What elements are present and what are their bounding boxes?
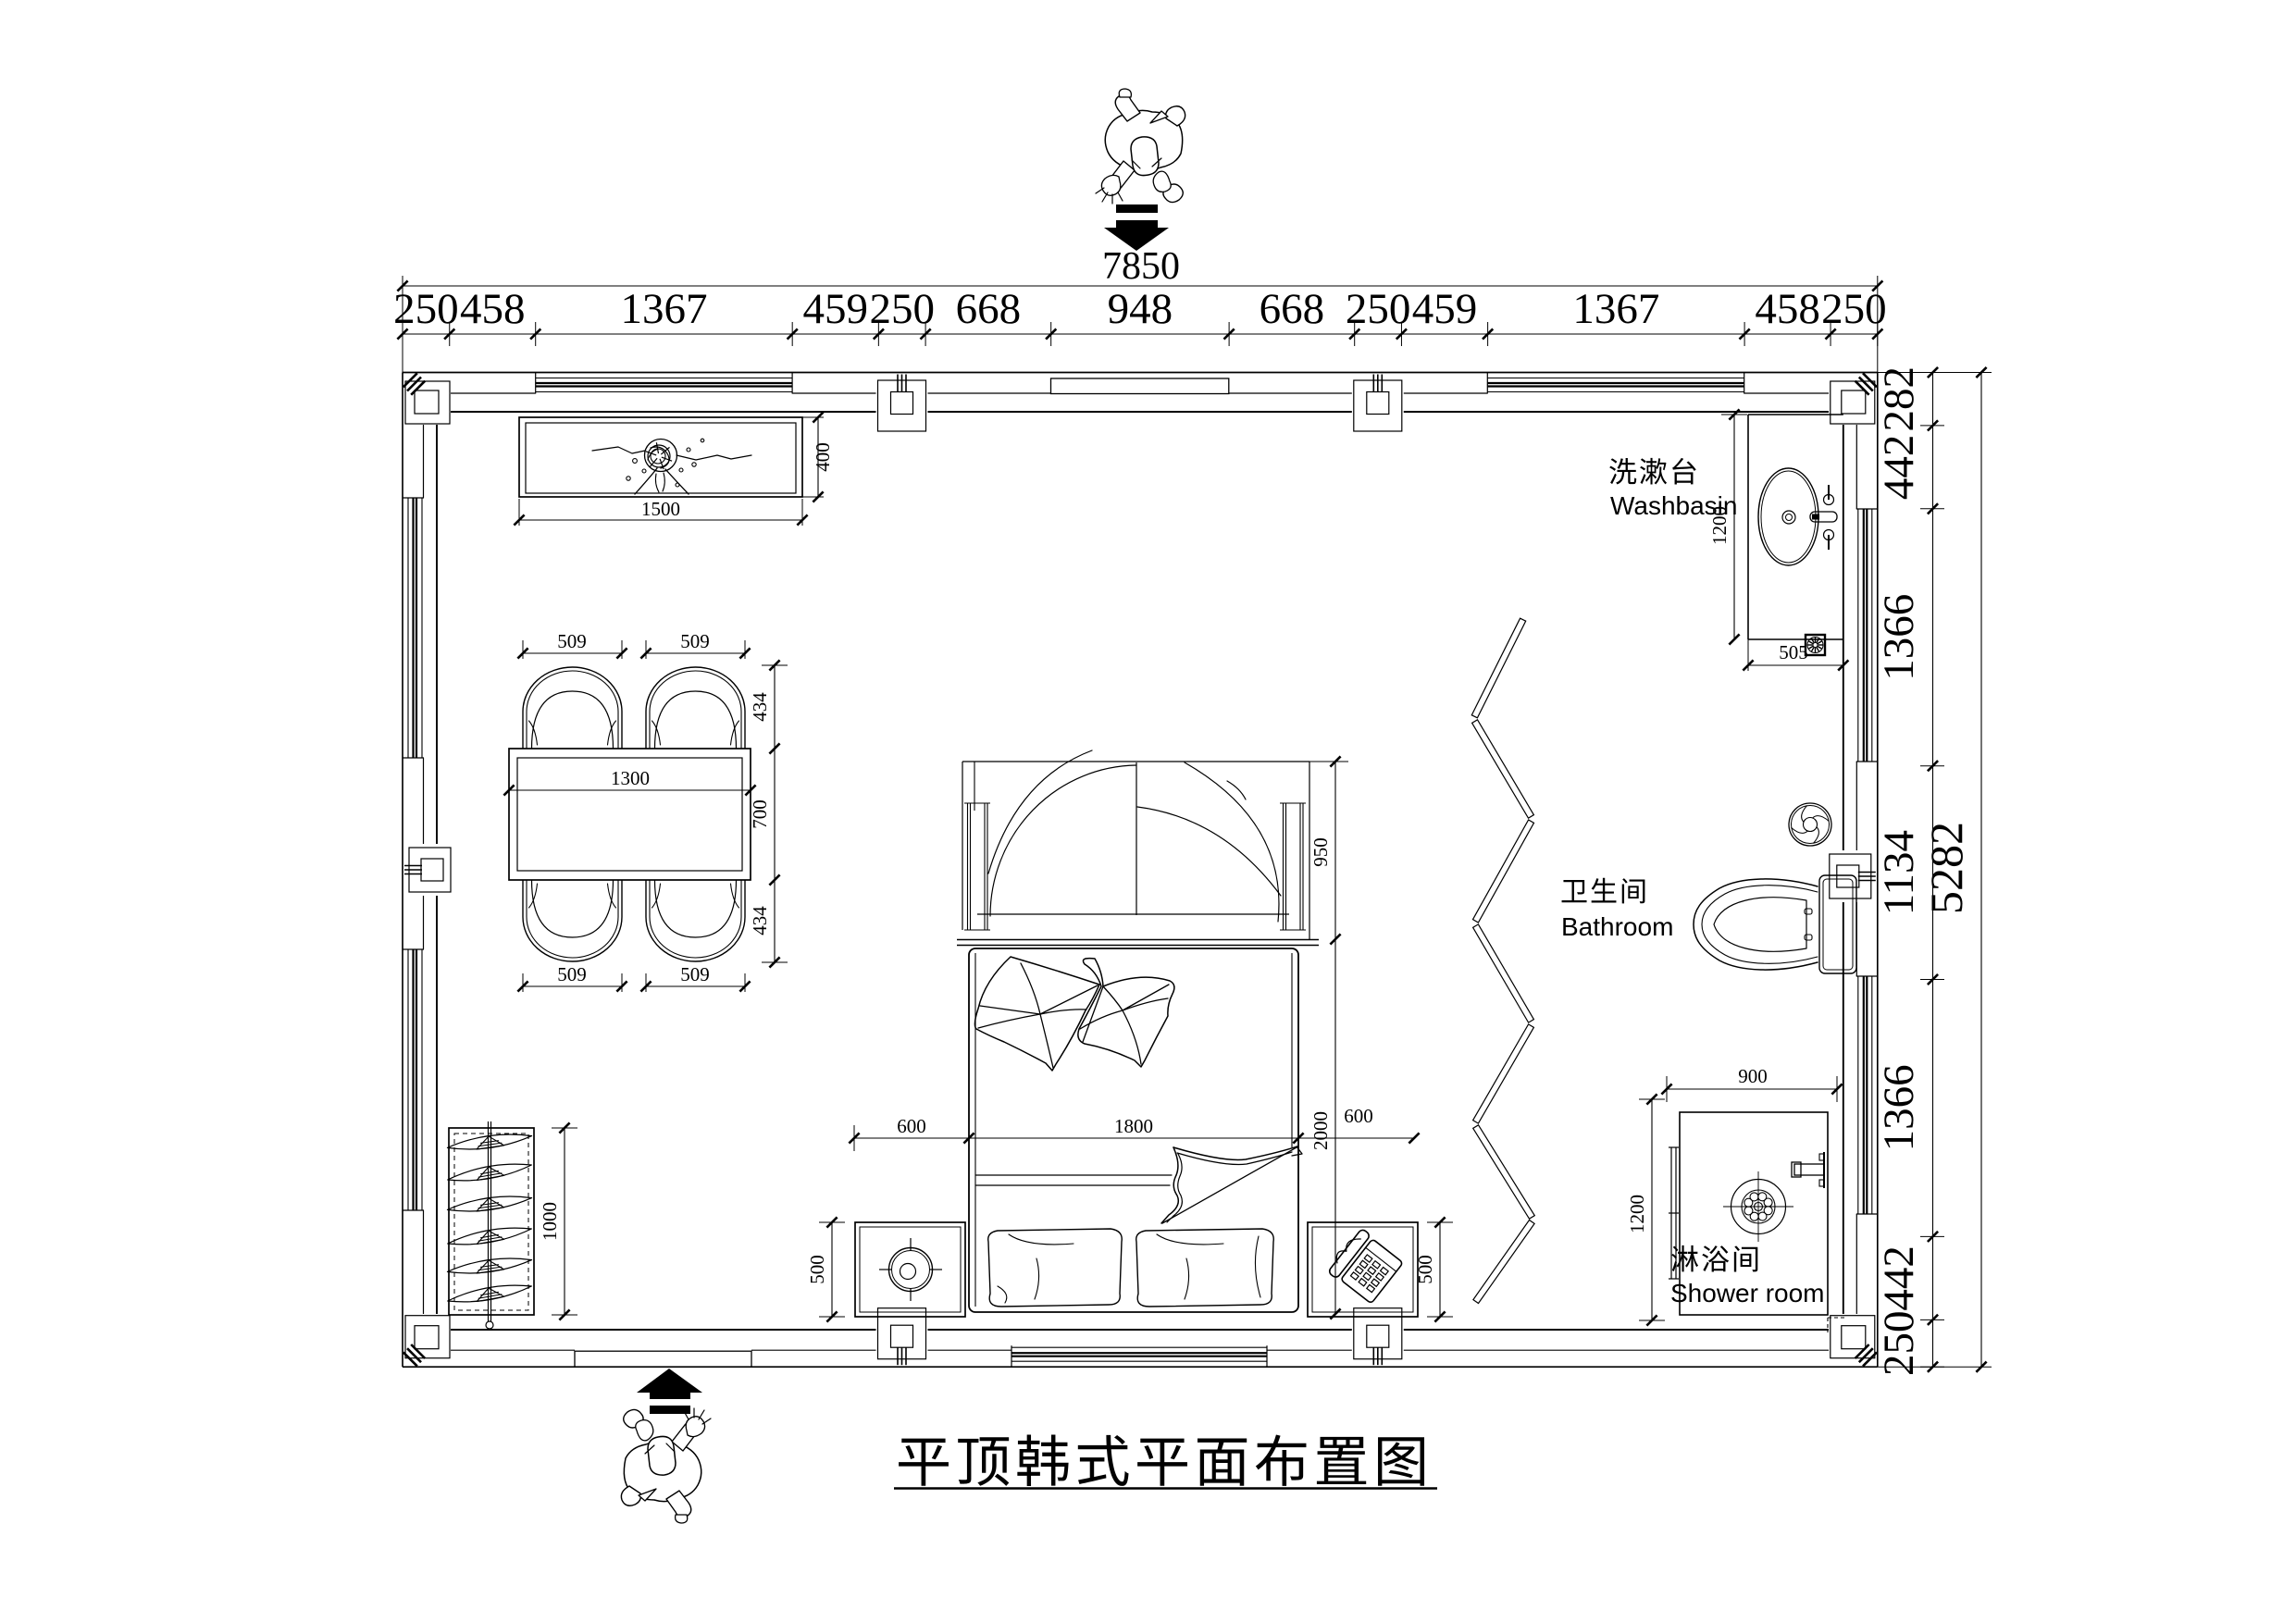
svg-text:Bathroom: Bathroom	[1561, 912, 1673, 941]
svg-text:2000: 2000	[1309, 1111, 1332, 1150]
svg-text:500: 500	[1414, 1255, 1436, 1284]
svg-text:282: 282	[1875, 366, 1923, 432]
svg-text:1367: 1367	[1572, 285, 1659, 333]
svg-text:442: 442	[1875, 1245, 1923, 1311]
svg-text:459: 459	[1412, 285, 1478, 333]
svg-text:1500: 1500	[641, 498, 680, 520]
svg-text:500: 500	[806, 1255, 828, 1284]
svg-text:509: 509	[557, 963, 587, 985]
svg-text:1800: 1800	[1114, 1115, 1153, 1137]
svg-text:1367: 1367	[620, 285, 707, 333]
svg-text:458: 458	[460, 285, 526, 333]
svg-text:668: 668	[1260, 285, 1325, 333]
svg-text:948: 948	[1108, 285, 1173, 333]
svg-text:434: 434	[749, 906, 771, 935]
svg-text:250: 250	[1821, 285, 1887, 333]
svg-text:1300: 1300	[611, 767, 650, 789]
svg-text:250: 250	[869, 285, 935, 333]
svg-text:505: 505	[1779, 641, 1808, 663]
svg-text:700: 700	[749, 799, 771, 829]
svg-text:900: 900	[1738, 1065, 1768, 1087]
svg-text:600: 600	[1344, 1105, 1373, 1127]
svg-text:509: 509	[680, 963, 710, 985]
svg-text:250: 250	[393, 285, 459, 333]
svg-text:434: 434	[749, 692, 771, 722]
svg-text:600: 600	[897, 1115, 926, 1137]
svg-text:668: 668	[956, 285, 1022, 333]
svg-text:1000: 1000	[539, 1202, 561, 1241]
svg-text:250: 250	[1875, 1311, 1923, 1377]
svg-text:442: 442	[1875, 435, 1923, 500]
svg-text:Washbasin: Washbasin	[1610, 491, 1737, 520]
svg-text:5282: 5282	[1920, 822, 1972, 914]
svg-text:458: 458	[1755, 285, 1820, 333]
svg-text:509: 509	[557, 630, 587, 652]
svg-text:Shower room: Shower room	[1670, 1279, 1825, 1307]
svg-text:250: 250	[1346, 285, 1411, 333]
svg-text:509: 509	[680, 630, 710, 652]
svg-text:400: 400	[812, 442, 834, 472]
svg-text:1134: 1134	[1875, 830, 1923, 915]
svg-text:7850: 7850	[1102, 245, 1180, 288]
svg-text:1366: 1366	[1875, 1064, 1923, 1151]
svg-text:950: 950	[1309, 837, 1332, 867]
svg-text:1200: 1200	[1626, 1195, 1648, 1233]
svg-text:459: 459	[803, 285, 869, 333]
svg-text:1366: 1366	[1875, 594, 1923, 681]
